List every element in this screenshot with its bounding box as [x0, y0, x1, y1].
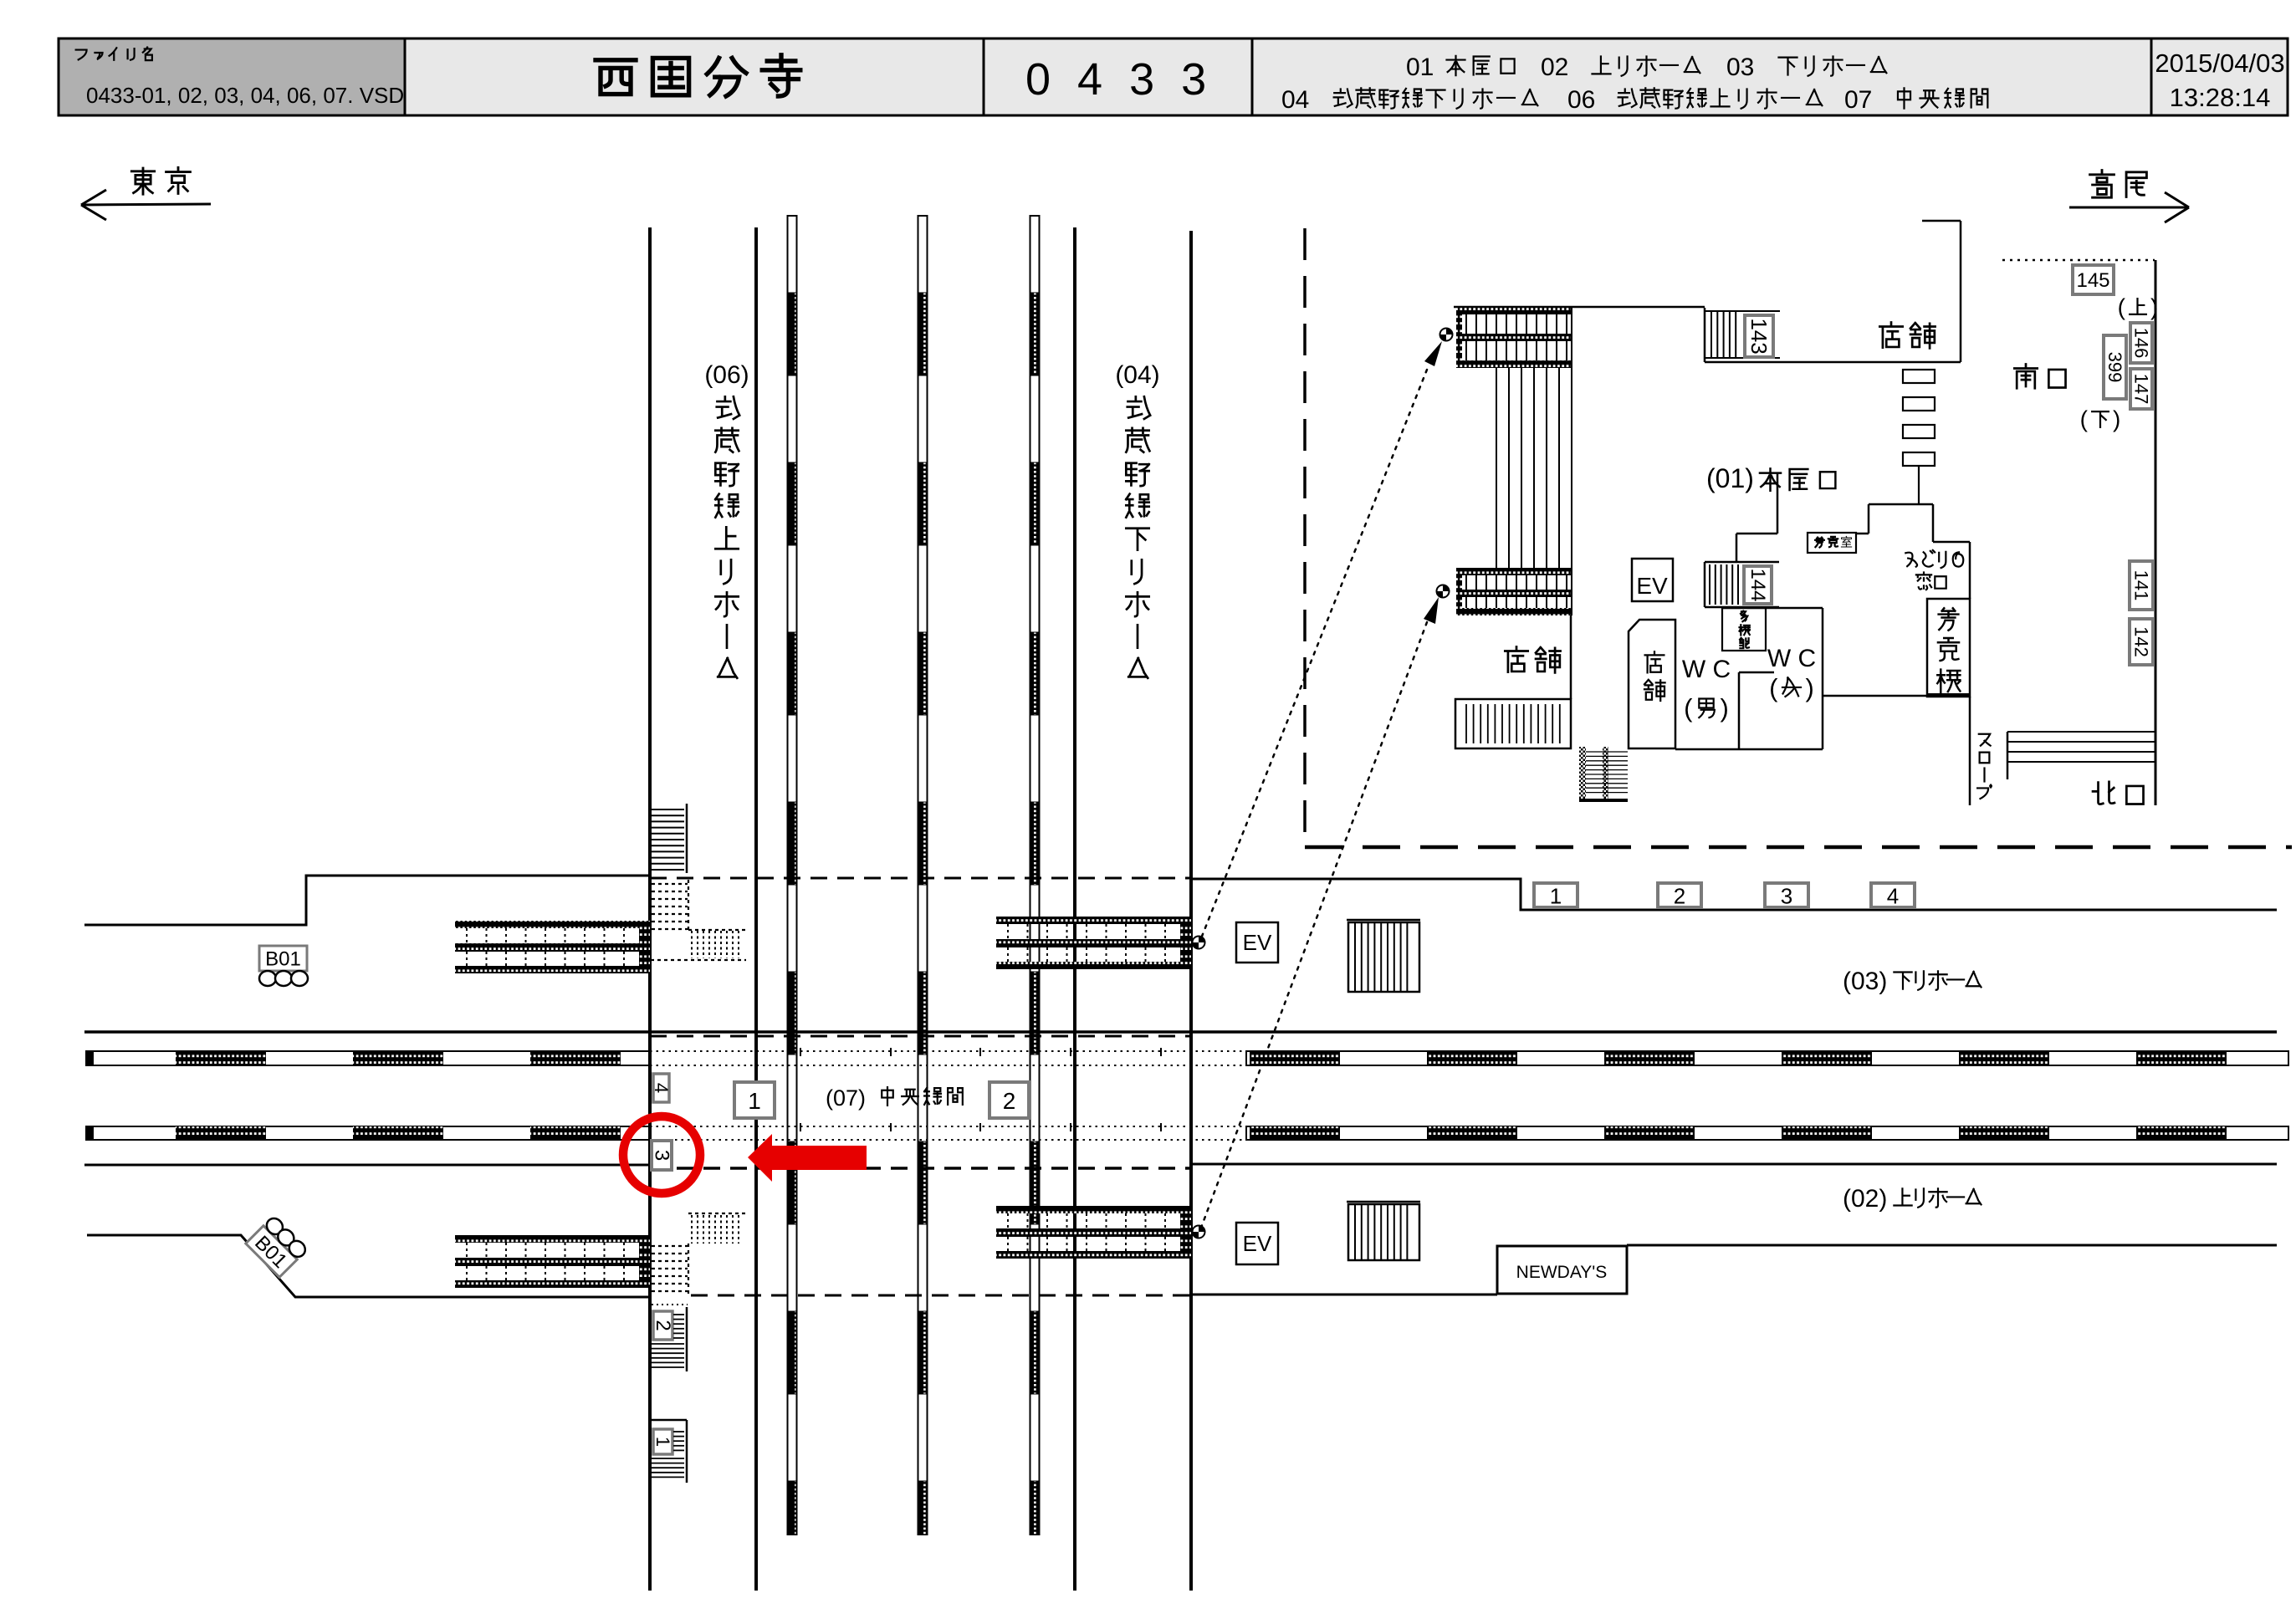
svg-text:145: 145 [2076, 269, 2109, 292]
svg-text:): ) [1806, 673, 1814, 702]
svg-text:1: 1 [652, 1437, 673, 1447]
svg-text:(04): (04) [1115, 361, 1159, 389]
svg-text:0433-01, 02, 03, 04, 06, 07. V: 0433-01, 02, 03, 04, 06, 07. VSD [86, 83, 404, 108]
svg-text:2: 2 [1674, 884, 1685, 909]
svg-text:2015/04/03: 2015/04/03 [2155, 49, 2284, 78]
svg-text:EV: EV [1243, 1231, 1272, 1256]
svg-text:W C: W C [1767, 645, 1816, 672]
svg-text:13:28:14: 13:28:14 [2170, 83, 2271, 112]
svg-text:02: 02 [1541, 54, 1568, 81]
svg-text:0433: 0433 [1025, 54, 1233, 105]
svg-text:B01: B01 [265, 948, 301, 971]
svg-text:(07): (07) [826, 1085, 866, 1111]
svg-text:EV: EV [1243, 930, 1272, 955]
svg-text:1: 1 [1550, 884, 1562, 909]
svg-text:143: 143 [1746, 318, 1772, 354]
svg-text:1: 1 [748, 1088, 761, 1114]
svg-text:142: 142 [2131, 626, 2152, 657]
svg-text:(: ( [1769, 673, 1778, 702]
svg-text:EV: EV [1636, 573, 1668, 599]
svg-text:147: 147 [2131, 374, 2152, 405]
svg-text:(: ( [2080, 406, 2089, 432]
svg-text:01: 01 [1406, 54, 1434, 81]
svg-text:04: 04 [1281, 86, 1309, 114]
svg-text:03: 03 [1726, 54, 1754, 81]
svg-text:2: 2 [652, 1320, 674, 1330]
svg-text:399: 399 [2104, 352, 2125, 383]
svg-text:(01): (01) [1706, 463, 1754, 493]
svg-text:): ) [1721, 693, 1729, 723]
svg-text:3: 3 [1781, 884, 1792, 909]
svg-text:): ) [2113, 406, 2120, 432]
svg-text:W C: W C [1682, 656, 1731, 683]
svg-text:3: 3 [651, 1150, 673, 1161]
svg-text:(: ( [1684, 693, 1693, 723]
svg-text:06: 06 [1567, 86, 1595, 114]
svg-text:(06): (06) [704, 361, 749, 389]
svg-text:146: 146 [2131, 328, 2152, 359]
svg-text:(: ( [2118, 294, 2126, 319]
svg-text:4: 4 [651, 1083, 672, 1093]
svg-text:(02): (02) [1843, 1185, 1887, 1213]
svg-text:NEWDAY'S: NEWDAY'S [1516, 1263, 1608, 1282]
svg-text:144: 144 [1746, 568, 1769, 601]
svg-text:07: 07 [1844, 86, 1872, 114]
svg-text:141: 141 [2131, 570, 2152, 601]
svg-text:4: 4 [1887, 884, 1899, 909]
svg-text:2: 2 [1003, 1088, 1016, 1114]
svg-text:室: 室 [1840, 535, 1853, 549]
svg-text:(03): (03) [1843, 968, 1887, 995]
